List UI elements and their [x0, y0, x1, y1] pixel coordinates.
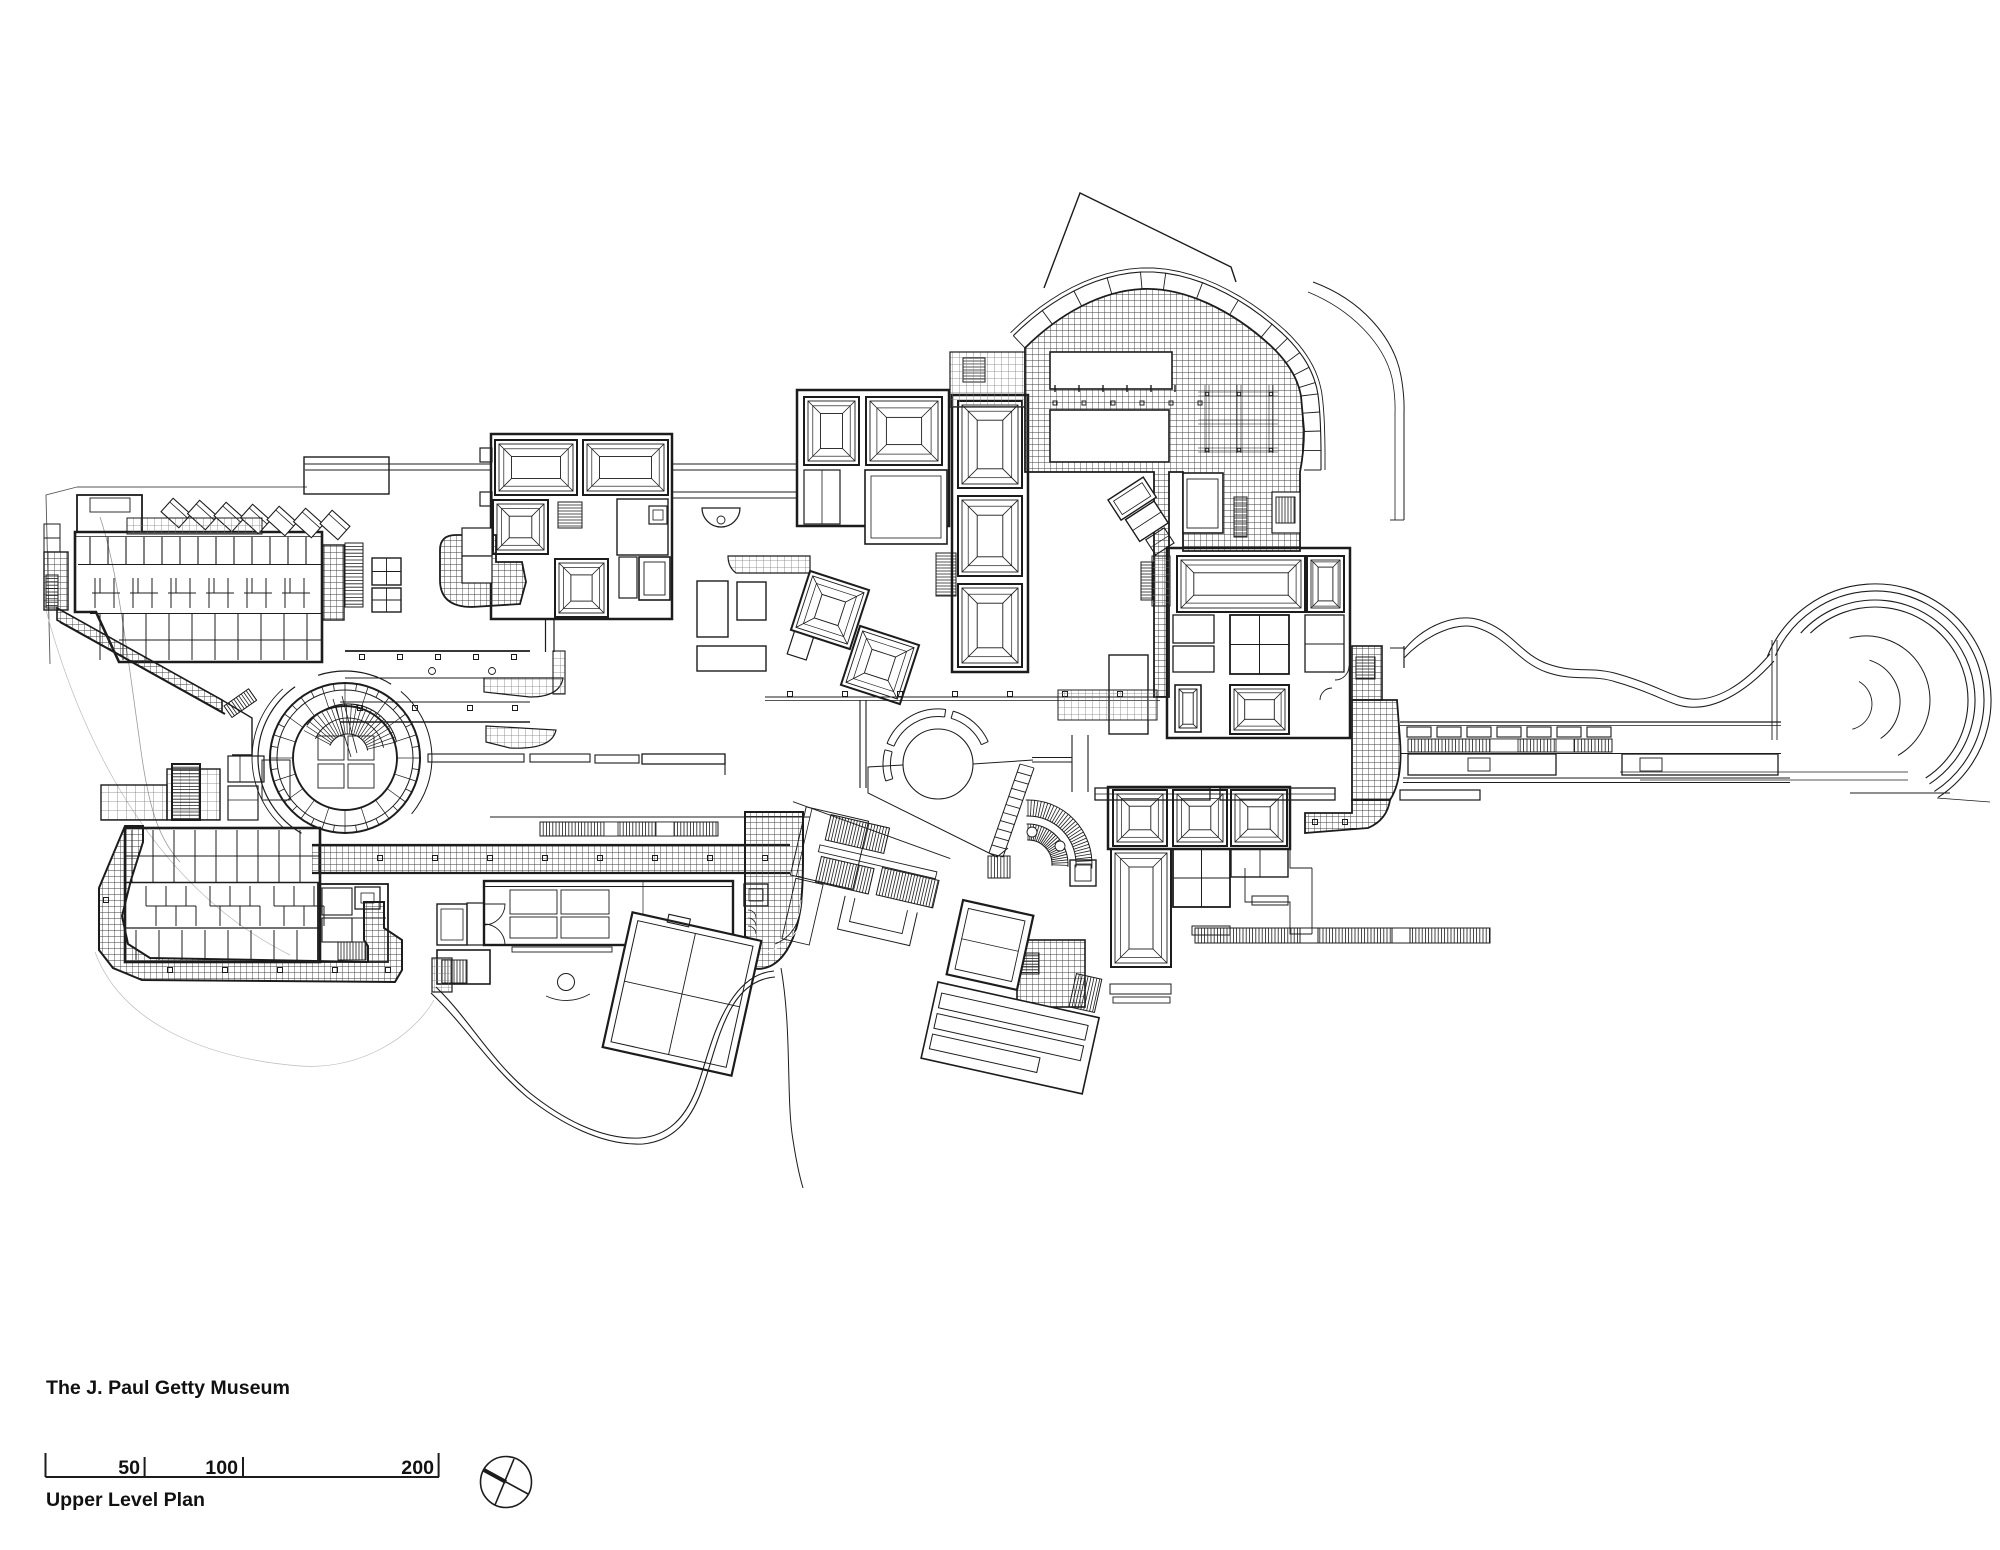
svg-text:200: 200	[401, 1457, 434, 1479]
svg-text:The J. Paul Getty Museum: The J. Paul Getty Museum	[46, 1377, 290, 1399]
svg-text:Upper Level Plan: Upper Level Plan	[46, 1489, 205, 1511]
svg-text:100: 100	[205, 1457, 238, 1479]
svg-text:50: 50	[118, 1457, 140, 1479]
